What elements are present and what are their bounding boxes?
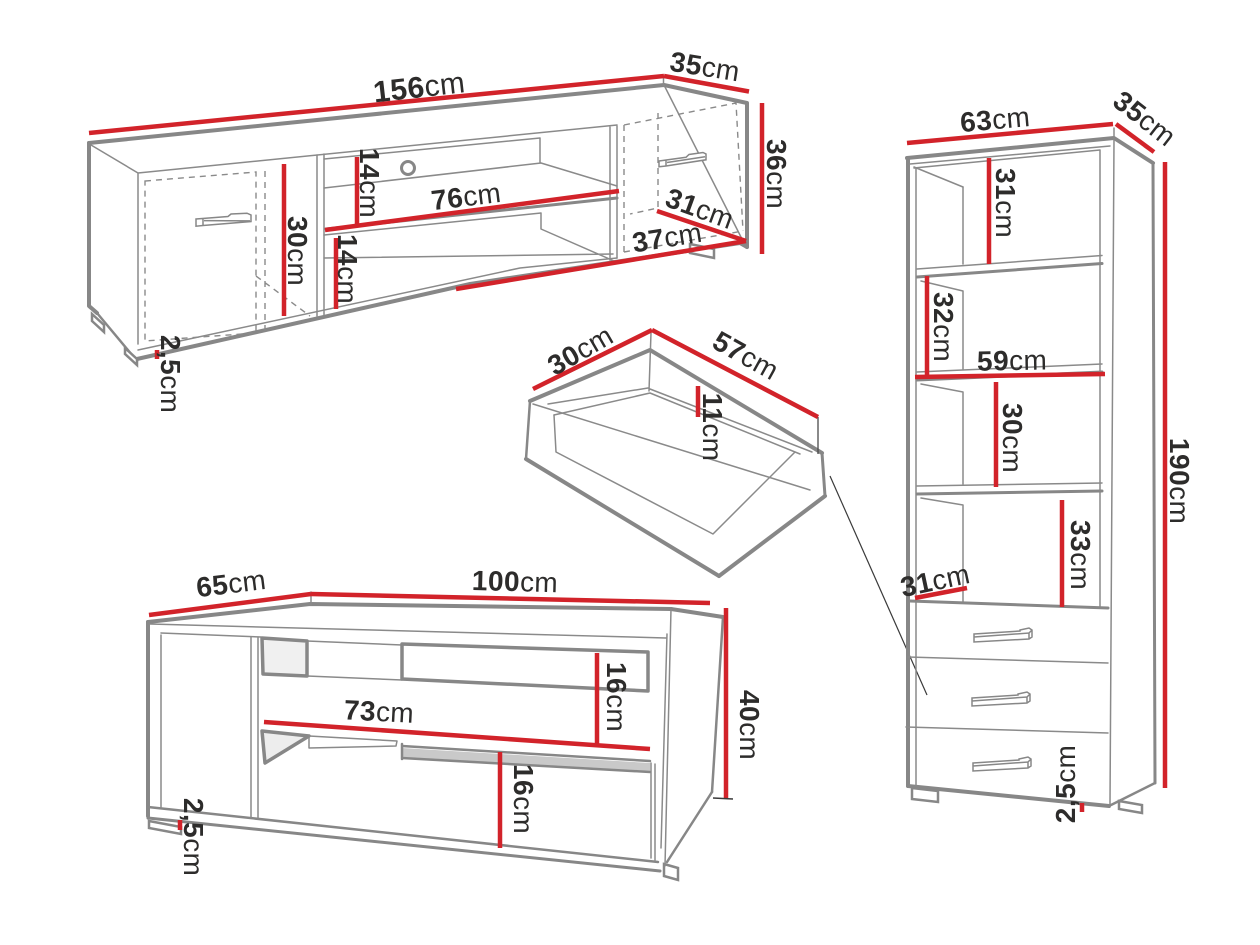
svg-text:14cm: 14cm — [332, 234, 363, 304]
svg-text:33cm: 33cm — [1065, 520, 1096, 590]
svg-text:36cm: 36cm — [761, 139, 792, 209]
svg-text:59cm: 59cm — [977, 344, 1048, 376]
svg-text:73cm: 73cm — [343, 694, 415, 729]
svg-text:100cm: 100cm — [472, 565, 559, 598]
svg-text:30cm: 30cm — [997, 403, 1028, 473]
svg-text:190cm: 190cm — [1164, 438, 1195, 524]
svg-text:2,5cm: 2,5cm — [155, 335, 186, 413]
svg-text:14cm: 14cm — [354, 148, 385, 218]
svg-text:16cm: 16cm — [508, 764, 539, 834]
svg-text:40cm: 40cm — [734, 690, 765, 760]
svg-text:32cm: 32cm — [928, 292, 959, 362]
svg-text:2,5cm: 2,5cm — [178, 798, 209, 876]
svg-text:31cm: 31cm — [990, 168, 1021, 238]
svg-text:30cm: 30cm — [282, 216, 313, 286]
svg-text:16cm: 16cm — [601, 662, 632, 732]
svg-text:11cm: 11cm — [697, 393, 728, 462]
svg-text:2,5cm: 2,5cm — [1050, 745, 1081, 823]
svg-text:63cm: 63cm — [959, 101, 1032, 138]
